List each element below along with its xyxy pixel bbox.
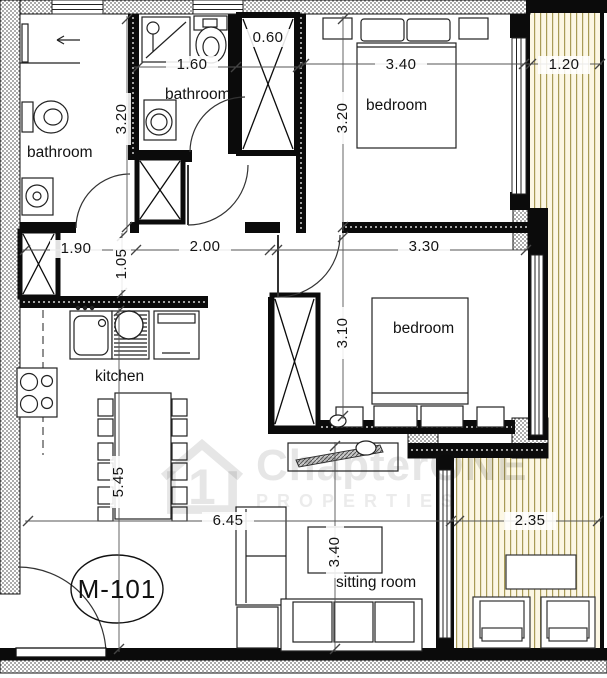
- dim-hall-mid-width: 2.00: [179, 238, 231, 256]
- balcony-chair: [541, 597, 595, 648]
- coffee-table: [308, 527, 382, 573]
- shelf: [22, 24, 28, 62]
- pillow: [361, 19, 404, 41]
- pillow: [374, 406, 417, 427]
- toilet-icon: [22, 101, 68, 133]
- fridge-icon: [154, 311, 199, 359]
- pillow: [421, 406, 463, 427]
- pillow: [407, 19, 450, 41]
- balcony-top: [530, 13, 600, 209]
- side-table: [237, 607, 278, 648]
- room-label-bathroom2: bathroom: [165, 86, 230, 104]
- unit-number: M-101: [72, 574, 162, 605]
- sofa-three-seat: [281, 599, 422, 651]
- closet-hall-nook: [137, 158, 183, 222]
- dim-bedroom2-width: 3.30: [398, 238, 450, 256]
- room-label-sitting-room: sitting room: [336, 574, 416, 592]
- nightstand: [477, 407, 504, 427]
- balcony-side: [548, 209, 600, 458]
- kitchen-fixtures: [17, 306, 199, 521]
- dim-hall-height: 1.05: [113, 238, 131, 290]
- wardrobe-bedroom2: [272, 295, 318, 428]
- nightstand: [323, 18, 352, 39]
- bathroom2-fixtures: [142, 16, 227, 140]
- dim-bedroom1-width: 3.40: [375, 56, 427, 74]
- dim-living-height: 5.45: [110, 456, 128, 508]
- balcony-table: [506, 555, 576, 589]
- dim-sitting-height: 3.40: [326, 526, 344, 578]
- room-label-bedroom1: bedroom: [366, 97, 427, 115]
- dim-bedroom2-height: 3.10: [334, 307, 352, 359]
- door-bedroom2: [278, 235, 340, 297]
- dim-balcony-top-width: 1.20: [538, 56, 590, 74]
- bedroom2-furniture: [330, 298, 504, 427]
- lamp-icon: [356, 441, 376, 455]
- dim-hall-left-width: 1.90: [50, 240, 102, 258]
- washbasin-icon: [144, 100, 176, 140]
- window-bathroom1: [52, 0, 103, 14]
- nightstand: [459, 18, 488, 39]
- dim-shaft-width: 0.60: [242, 29, 294, 47]
- dim-living-width: 6.45: [202, 512, 254, 530]
- washing-machine-icon: [22, 178, 53, 215]
- balcony-door-bedroom1: [512, 38, 526, 194]
- sink-icon: [70, 306, 112, 359]
- door-bathroom1: [76, 174, 130, 228]
- room-label-bedroom2: bedroom: [393, 320, 454, 338]
- bed: [372, 298, 468, 404]
- bathroom1-fixtures: [20, 24, 80, 215]
- dim-bedroom1-height: 3.20: [334, 92, 352, 144]
- dim-balcony-bottom-width: 2.35: [504, 512, 556, 530]
- stove-icon: [17, 368, 57, 417]
- balcony-chair: [473, 597, 530, 648]
- dim-bathroom1-height: 3.20: [113, 93, 131, 145]
- room-label-bathroom1: bathroom: [27, 144, 92, 162]
- room-label-kitchen: kitchen: [95, 368, 144, 386]
- balcony-window-bedroom2: [531, 255, 543, 435]
- window-bathroom2: [193, 0, 243, 14]
- dim-bathroom2-width: 1.60: [166, 56, 218, 74]
- balcony-door-sitting-room: [439, 470, 451, 638]
- floor-plan: 1 ChapterONE PROPERTIES 0.60 1.60 3.40 1…: [0, 0, 607, 678]
- door-hall-nook: [188, 165, 248, 225]
- direction-arrow-icon: [57, 36, 80, 44]
- hob-icon: [112, 311, 149, 359]
- tv-console: [288, 441, 398, 471]
